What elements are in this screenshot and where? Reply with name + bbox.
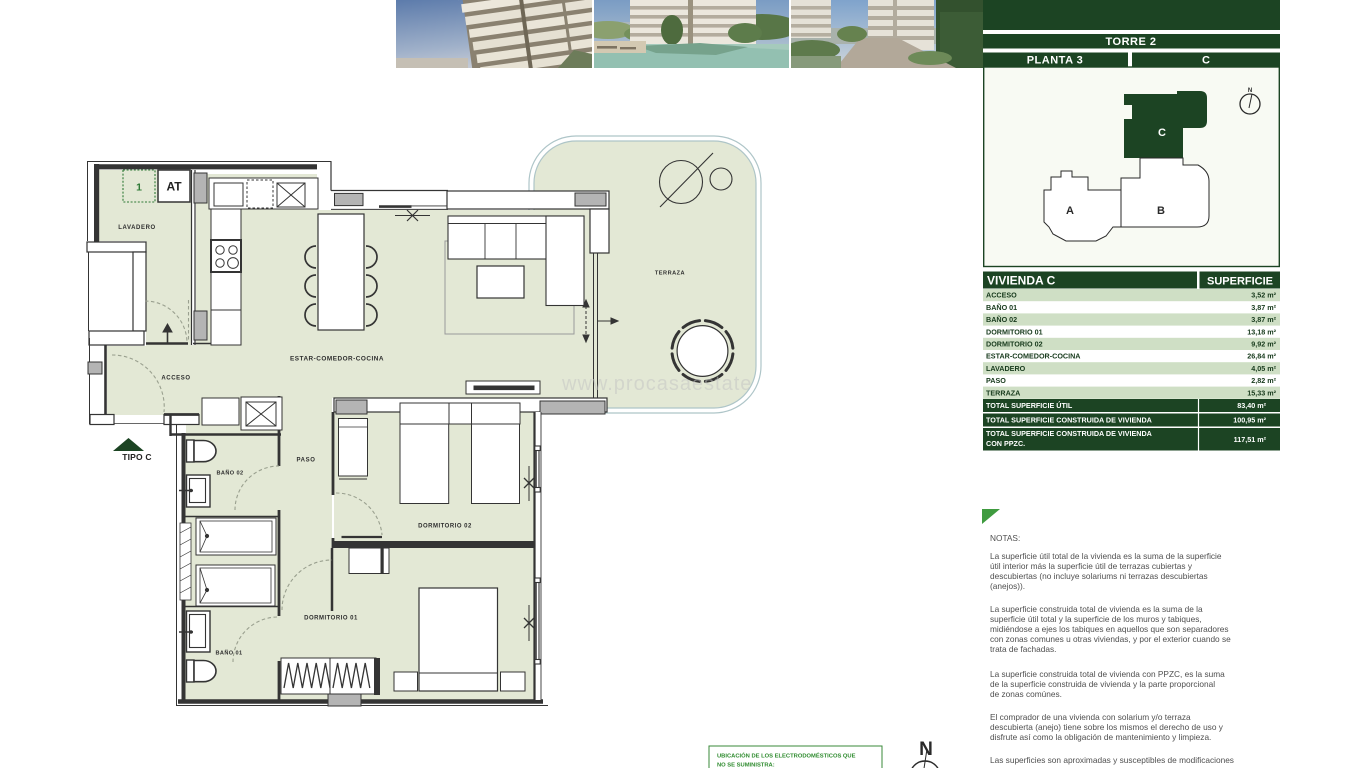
svg-text:3,87 m²: 3,87 m²: [1251, 303, 1276, 312]
svg-text:superficie útil total y la sup: superficie útil total y la superficie de…: [990, 614, 1202, 624]
svg-text:útil interior más la superfici: útil interior más la superficie útil de …: [990, 561, 1193, 571]
svg-text:con zonas comunes u otras vivi: con zonas comunes u otras viviendas, y p…: [990, 634, 1231, 644]
svg-text:ESTAR-COMEDOR-COCINA: ESTAR-COMEDOR-COCINA: [290, 356, 384, 363]
svg-text:UBICACIÓN DE LOS ELECTRODOMÉST: UBICACIÓN DE LOS ELECTRODOMÉSTICOS QUE: [717, 752, 856, 760]
svg-text:CON PPZC.: CON PPZC.: [986, 439, 1025, 448]
svg-text:La superficie construida total: La superficie construida total de vivien…: [990, 669, 1225, 679]
svg-text:LAVADERO: LAVADERO: [986, 364, 1026, 373]
svg-text:26,84 m²: 26,84 m²: [1247, 352, 1276, 361]
svg-text:TERRAZA: TERRAZA: [986, 388, 1020, 397]
svg-text:disfrute así como la obligació: disfrute así como la obligación de mante…: [990, 732, 1211, 742]
svg-text:El comprador de una vivienda c: El comprador de una vivienda con solariu…: [990, 712, 1191, 722]
svg-text:PASO: PASO: [297, 458, 316, 464]
svg-text:15,33 m²: 15,33 m²: [1247, 388, 1276, 397]
svg-text:BAÑO 01: BAÑO 01: [986, 303, 1017, 312]
svg-text:TIPO C: TIPO C: [122, 452, 152, 462]
svg-text:100,95 m²: 100,95 m²: [1233, 416, 1266, 425]
svg-text:TORRE 2: TORRE 2: [1106, 36, 1157, 48]
svg-text:TERRAZA: TERRAZA: [655, 271, 685, 277]
svg-text:NO SE SUMINISTRA:: NO SE SUMINISTRA:: [717, 763, 775, 768]
svg-text:9,92 m²: 9,92 m²: [1251, 340, 1276, 349]
svg-text:A: A: [1066, 205, 1074, 217]
svg-text:de la superficie construida de: de la superficie construida de vivienda …: [990, 679, 1215, 689]
svg-text:de zonas comúnes.: de zonas comúnes.: [990, 689, 1062, 699]
svg-text:LAVADERO: LAVADERO: [118, 225, 156, 231]
svg-text:AT: AT: [166, 180, 182, 194]
svg-text:ESTAR-COMEDOR-COCINA: ESTAR-COMEDOR-COCINA: [986, 352, 1081, 361]
svg-text:TOTAL SUPERFICIE ÚTIL: TOTAL SUPERFICIE ÚTIL: [986, 401, 1073, 410]
svg-text:BAÑO 01: BAÑO 01: [215, 650, 242, 657]
svg-text:DORMITORIO 02: DORMITORIO 02: [986, 340, 1043, 349]
svg-text:83,40 m²: 83,40 m²: [1237, 401, 1266, 410]
svg-text:ACCESO: ACCESO: [161, 376, 190, 382]
svg-text:trata de fachadas.: trata de fachadas.: [990, 644, 1056, 654]
svg-text:midiéndose a ejes los tabiques: midiéndose a ejes los tabiques en aquell…: [990, 624, 1228, 634]
svg-text:NOTAS:: NOTAS:: [990, 533, 1020, 543]
svg-text:4,05 m²: 4,05 m²: [1251, 364, 1276, 373]
svg-text:VIVIENDA C: VIVIENDA C: [987, 274, 1056, 288]
svg-text:3,52 m²: 3,52 m²: [1251, 291, 1276, 300]
svg-text:La superficie construida total: La superficie construida total de vivien…: [990, 604, 1203, 614]
svg-text:SUPERFICIE: SUPERFICIE: [1207, 276, 1273, 288]
svg-text:DORMITORIO 02: DORMITORIO 02: [418, 524, 472, 530]
svg-text:(anejos)).: (anejos)).: [990, 581, 1025, 591]
svg-text:Las superficies son aproximada: Las superficies son aproximadas y suscep…: [990, 755, 1234, 765]
svg-text:13,18 m²: 13,18 m²: [1247, 327, 1276, 336]
svg-text:N: N: [1248, 88, 1252, 94]
svg-text:BAÑO 02: BAÑO 02: [986, 315, 1017, 324]
svg-text:DORMITORIO 01: DORMITORIO 01: [304, 616, 358, 622]
svg-text:2,82 m²: 2,82 m²: [1251, 376, 1276, 385]
svg-text:ACCESO: ACCESO: [986, 291, 1017, 300]
svg-text:TOTAL SUPERFICIE CONSTRUIDA DE: TOTAL SUPERFICIE CONSTRUIDA DE VIVIENDA: [986, 416, 1152, 425]
svg-text:C: C: [1158, 127, 1166, 139]
svg-text:BAÑO 02: BAÑO 02: [216, 470, 243, 477]
svg-text:TOTAL SUPERFICIE CONSTRUIDA DE: TOTAL SUPERFICIE CONSTRUIDA DE VIVIENDA: [986, 429, 1152, 438]
svg-text:descubierta (anejo) tiene sobr: descubierta (anejo) tiene sobre los mism…: [990, 722, 1224, 732]
svg-text:www.procasaestate: www.procasaestate: [561, 373, 752, 395]
svg-text:descubiertas (no incluye solar: descubiertas (no incluye solariums ni te…: [990, 571, 1208, 581]
svg-text:La superficie útil total de la: La superficie útil total de la vivienda …: [990, 551, 1222, 561]
svg-text:C: C: [1202, 54, 1210, 66]
svg-text:1: 1: [136, 182, 142, 194]
svg-text:117,51 m²: 117,51 m²: [1234, 435, 1267, 444]
svg-text:PASO: PASO: [986, 376, 1006, 385]
svg-text:DORMITORIO 01: DORMITORIO 01: [986, 327, 1043, 336]
svg-text:B: B: [1157, 205, 1165, 217]
svg-text:PLANTA 3: PLANTA 3: [1027, 54, 1084, 66]
svg-text:3,87 m²: 3,87 m²: [1251, 315, 1276, 324]
